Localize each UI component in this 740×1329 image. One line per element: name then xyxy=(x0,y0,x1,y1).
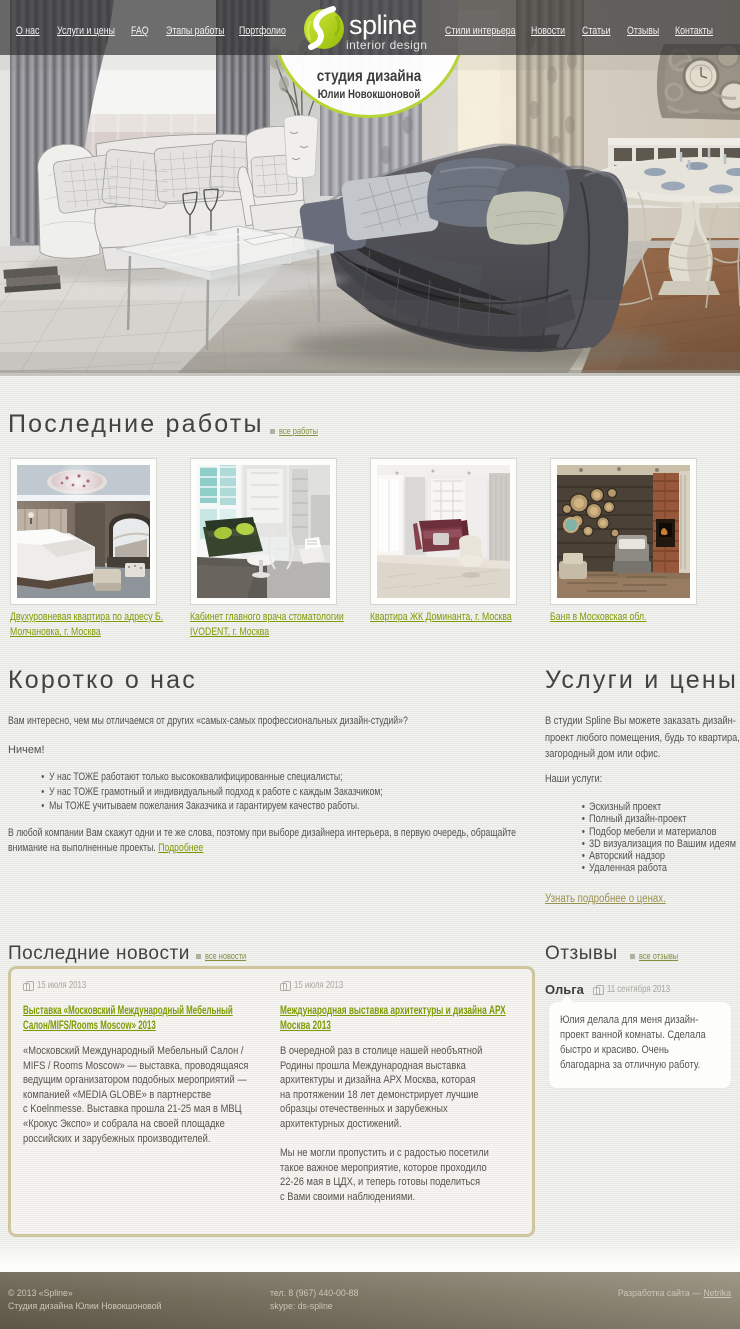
svg-text:interior design: interior design xyxy=(346,38,427,52)
svg-text:spline: spline xyxy=(349,10,417,40)
